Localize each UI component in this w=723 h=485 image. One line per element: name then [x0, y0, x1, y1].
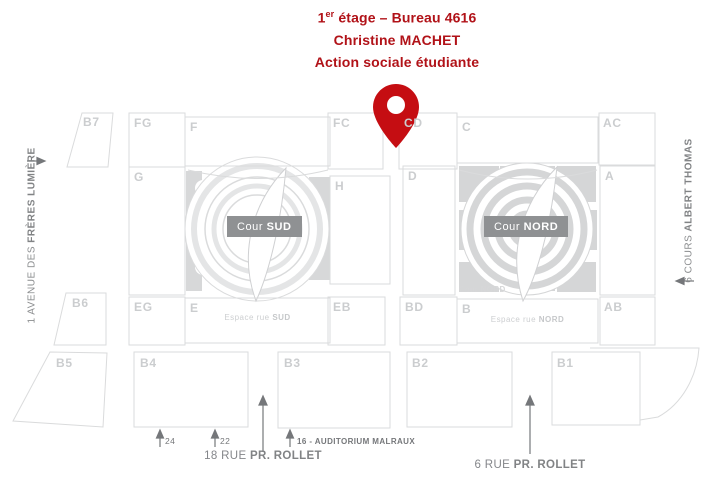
entrance-16-auditorium-label: 16 - AUDITORIUM MALRAUX	[297, 437, 415, 446]
campus-map-graphics	[0, 0, 723, 485]
building-label-b6: B6	[72, 296, 89, 310]
espace-rue-sud-label: Espace rue SUD	[185, 313, 330, 322]
header-line1-sup: er	[326, 9, 335, 19]
building-label-d: D	[408, 169, 417, 183]
building-label-b1: B1	[557, 356, 574, 370]
building-label-b7: B7	[83, 115, 100, 129]
espace-sud-prefix: Espace rue	[224, 313, 272, 322]
espace-rue-nord-label: Espace rue NORD	[457, 315, 598, 324]
campus-map-page: 1er étage – Bureau 4616 Christine MACHET…	[0, 0, 723, 485]
building-label-fg: FG	[134, 116, 152, 130]
street-avenue-freres-lumiere: 1 AVENUE DES FRÈRES LUMIÈRE	[27, 154, 38, 324]
street-cours-albert-thomas: 6 COURS ALBERT THOMAS	[684, 136, 695, 286]
building-label-b: B	[462, 302, 471, 316]
entrance-24-label: 24	[165, 436, 175, 446]
building-label-eb: EB	[333, 300, 351, 314]
cour-nord-prefix: Cour	[494, 221, 524, 233]
building-label-b3: B3	[284, 356, 301, 370]
header-line1-num: 1	[318, 10, 326, 26]
building-label-ab: AB	[604, 300, 623, 314]
header-line1-rest: étage – Bureau 4616	[334, 10, 476, 26]
building-label-bd: BD	[405, 300, 424, 314]
building-label-cd: CD	[404, 116, 423, 130]
cour-sud-prefix: Cour	[237, 221, 267, 233]
street-6-prefix: 6 RUE	[475, 459, 514, 471]
cour-nord-small-bold: NORD	[481, 285, 506, 294]
cour-nord-small-label: Cour NORD	[459, 285, 506, 294]
espace-nord-prefix: Espace rue	[491, 315, 539, 324]
building-label-h: H	[335, 179, 344, 193]
street-right-prefix: 6 COURS	[684, 231, 695, 282]
cour-nord-small-prefix: Cour	[459, 285, 481, 294]
building-label-g: G	[134, 170, 144, 184]
street-left-prefix: 1 AVENUE DES	[27, 243, 38, 324]
street-18-bold: PR. ROLLET	[250, 450, 322, 462]
espace-nord-bold: NORD	[539, 315, 564, 324]
street-18-prefix: 18 RUE	[204, 450, 250, 462]
cour-sud-label: Cour SUD	[227, 216, 302, 237]
cour-nord-label: Cour NORD	[484, 216, 568, 237]
entrance-22-label: 22	[220, 436, 230, 446]
building-label-c: C	[462, 120, 471, 134]
street-6-bold: PR. ROLLET	[514, 459, 586, 471]
street-right-bold: ALBERT THOMAS	[684, 138, 695, 231]
street-6-rue-pr-rollet: 6 RUE PR. ROLLET	[450, 459, 610, 471]
header-line2: Christine MACHET	[222, 32, 572, 48]
building-label-f: F	[190, 120, 198, 134]
building-label-ac: AC	[603, 116, 622, 130]
cour-sud-bold: SUD	[267, 221, 292, 233]
building-label-b5: B5	[56, 356, 73, 370]
espace-sud-bold: SUD	[272, 313, 290, 322]
street-18-rue-pr-rollet: 18 RUE PR. ROLLET	[183, 450, 343, 462]
building-label-b4: B4	[140, 356, 157, 370]
header-line3: Action sociale étudiante	[222, 54, 572, 70]
header-line1: 1er étage – Bureau 4616	[222, 9, 572, 26]
building-label-a: A	[605, 169, 614, 183]
street-left-bold: FRÈRES LUMIÈRE	[27, 147, 38, 242]
cour-nord-bold: NORD	[524, 221, 559, 233]
building-label-eg: EG	[134, 300, 153, 314]
building-outlines	[13, 113, 699, 428]
building-label-b2: B2	[412, 356, 429, 370]
building-label-fc: FC	[333, 116, 350, 130]
